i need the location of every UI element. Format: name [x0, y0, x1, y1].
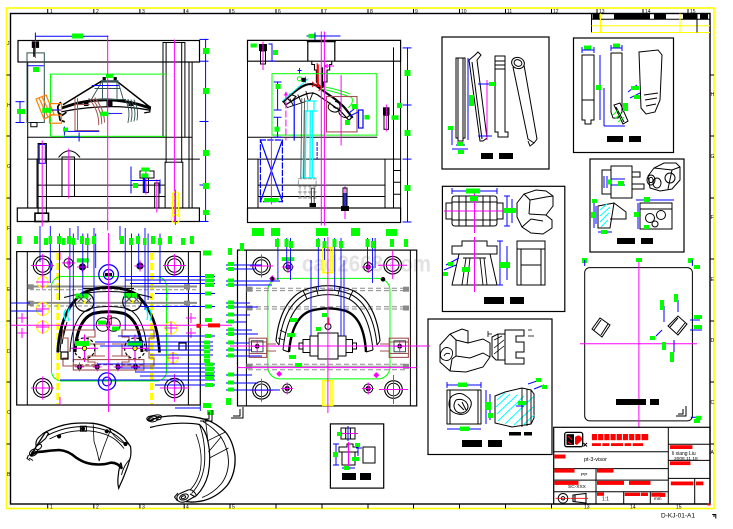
svg-text:SC-XXX: SC-XXX: [568, 484, 587, 490]
svg-text:F: F: [711, 215, 714, 221]
svg-text:12: 12: [553, 9, 559, 15]
svg-text:PP: PP: [581, 472, 587, 478]
svg-text:2: 2: [96, 505, 99, 511]
svg-text:3: 3: [142, 9, 145, 15]
svg-text:H: H: [711, 92, 715, 98]
svg-text:1: 1: [50, 9, 53, 15]
svg-text:13: 13: [599, 9, 605, 15]
svg-text:7: 7: [324, 9, 327, 15]
svg-text:H: H: [7, 103, 11, 109]
svg-text:D-KJ-01-A1: D-KJ-01-A1: [661, 513, 695, 520]
svg-text:F: F: [7, 226, 10, 232]
svg-text:4: 4: [186, 9, 189, 15]
svg-text:15: 15: [676, 505, 682, 511]
svg-text:D: D: [7, 349, 11, 355]
svg-text:pt-3-visor: pt-3-visor: [584, 457, 607, 463]
svg-text:cad2668.com: cad2668.com: [302, 251, 431, 277]
svg-text:1: 1: [50, 505, 53, 511]
svg-text:C: C: [7, 410, 11, 416]
svg-text:14: 14: [630, 505, 636, 511]
svg-text:4: 4: [186, 505, 189, 511]
svg-text:5: 5: [232, 505, 235, 511]
svg-text:13: 13: [584, 505, 590, 511]
svg-text:G: G: [711, 154, 715, 160]
svg-text:6: 6: [278, 9, 281, 15]
svg-text:2: 2: [96, 9, 99, 15]
svg-text:1:1: 1:1: [602, 496, 609, 502]
svg-text:8: 8: [370, 9, 373, 15]
svg-text:10: 10: [461, 9, 467, 15]
svg-text:C: C: [711, 400, 715, 406]
svg-text:5: 5: [232, 9, 235, 15]
svg-text:9: 9: [415, 9, 418, 15]
svg-text:G: G: [7, 164, 11, 170]
svg-text:D: D: [711, 338, 715, 344]
svg-text:3: 3: [142, 505, 145, 511]
svg-text:2008.11.18: 2008.11.18: [674, 456, 698, 462]
svg-text:11: 11: [507, 9, 512, 15]
